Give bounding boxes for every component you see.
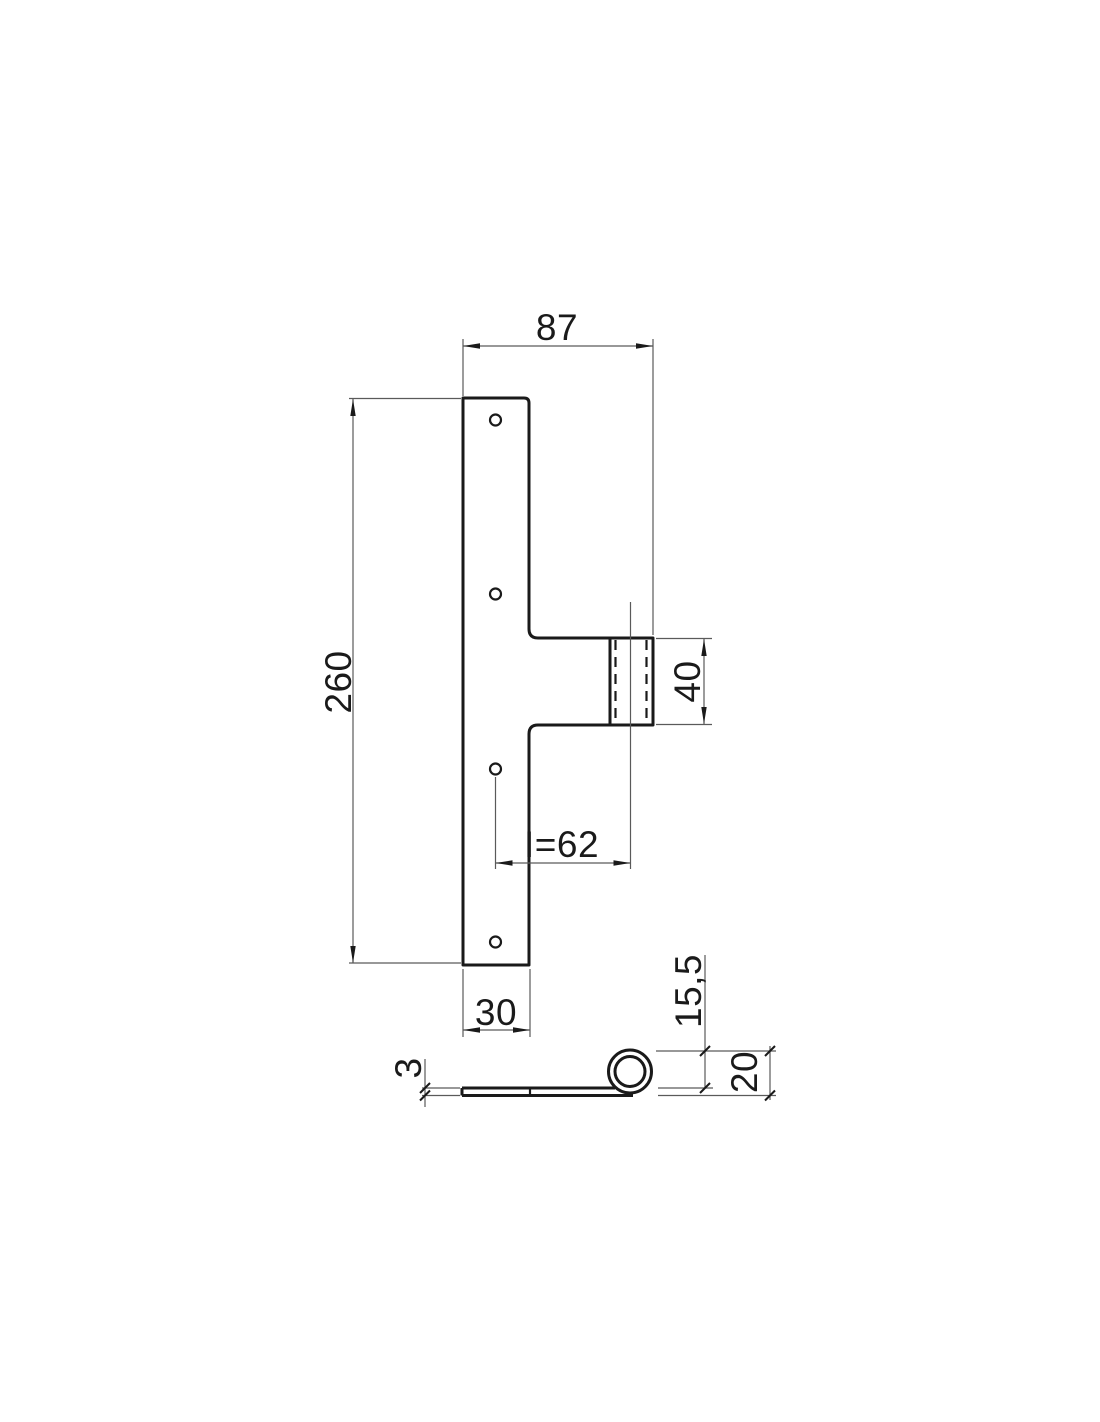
plate-outline — [463, 398, 653, 965]
dimension-i62: I=62 — [496, 777, 631, 869]
arrowhead — [350, 946, 355, 963]
hinge-technical-drawing: 87 260 40 I=62 30 — [0, 0, 1100, 1422]
arrowhead — [350, 399, 355, 416]
screw-hole-4 — [490, 937, 501, 948]
knuckle-inner-circle — [615, 1057, 645, 1087]
side-view — [462, 1050, 652, 1097]
arrowhead — [496, 860, 513, 865]
dim-3-label: 3 — [388, 1057, 429, 1078]
dimension-30: 30 — [463, 969, 530, 1037]
dimension-20: 20 — [658, 1046, 776, 1101]
dimension-87: 87 — [463, 307, 653, 635]
dim-30-label: 30 — [475, 992, 517, 1033]
dim-40-label: 40 — [667, 660, 708, 702]
dim-15-5-label: 15,5 — [668, 954, 709, 1028]
dim-87-label: 87 — [536, 307, 578, 348]
arrowhead — [614, 860, 631, 865]
arrowhead — [701, 639, 706, 656]
arrowhead — [701, 707, 706, 724]
dimension-260: 260 — [318, 399, 461, 964]
screw-hole-2 — [490, 589, 501, 600]
dimension-3: 3 — [388, 1057, 460, 1107]
dim-20-label: 20 — [724, 1051, 765, 1093]
arrowhead — [463, 343, 480, 348]
arrowhead — [636, 343, 653, 348]
dim-260-label: 260 — [318, 650, 359, 713]
front-view — [463, 398, 653, 965]
dimension-40: 40 — [656, 639, 712, 725]
screw-hole-1 — [490, 415, 501, 426]
dim-i62-label: I=62 — [524, 824, 599, 865]
screw-hole-3 — [490, 764, 501, 775]
